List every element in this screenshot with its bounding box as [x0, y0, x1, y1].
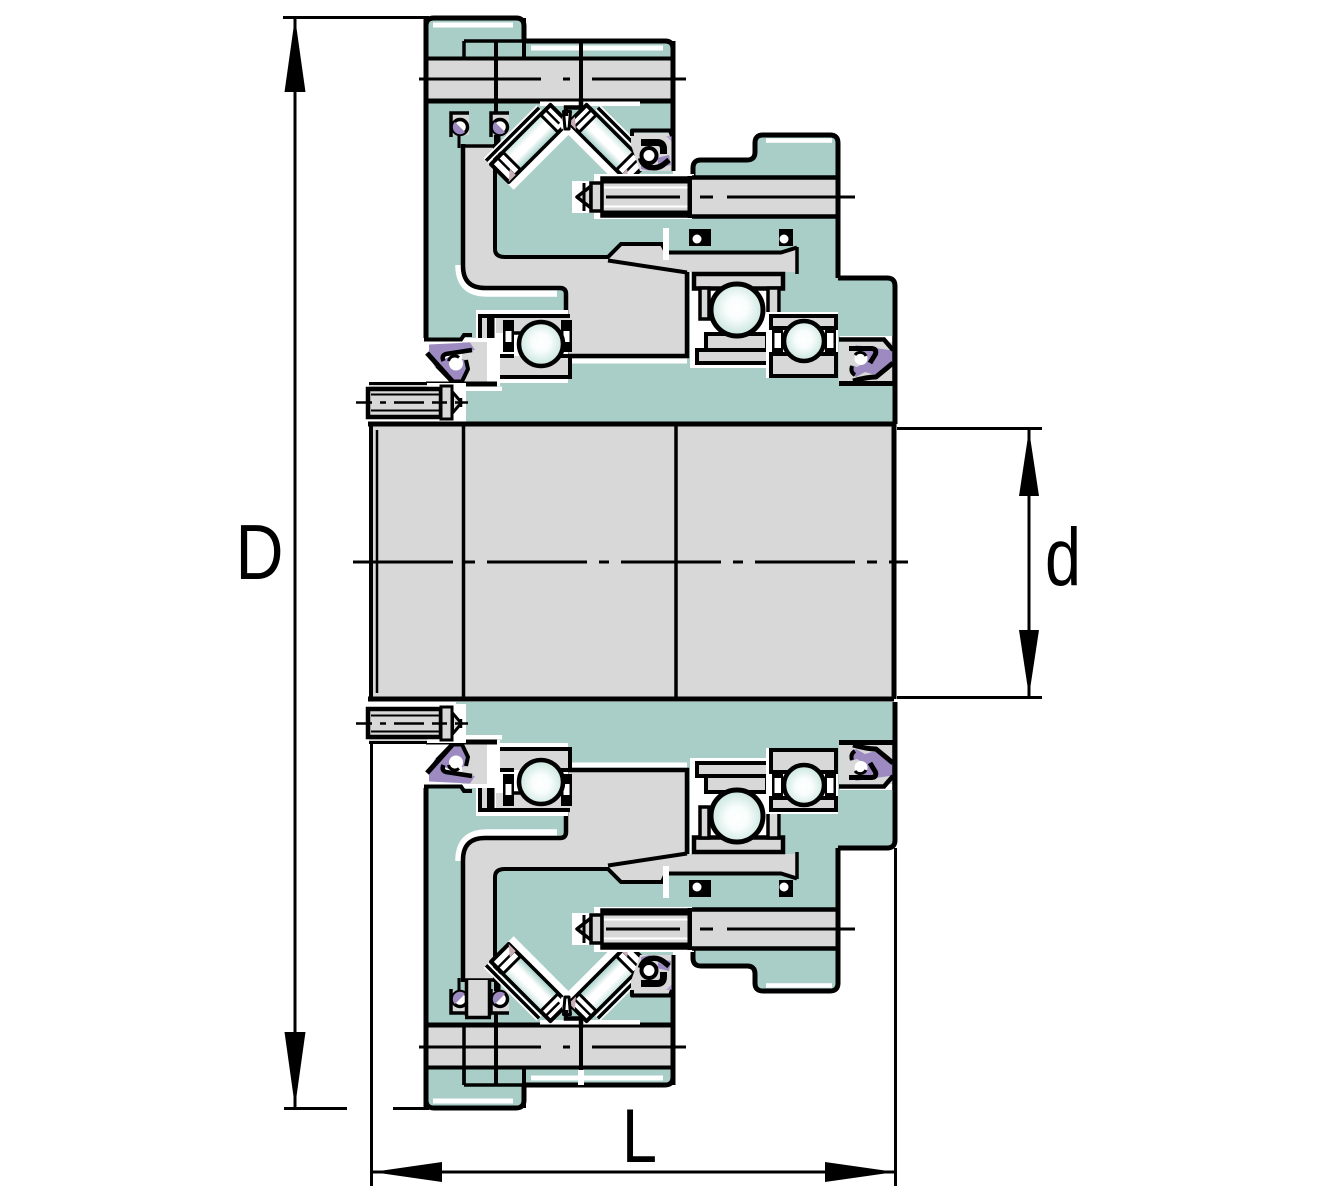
svg-text:L: L: [622, 1094, 657, 1179]
svg-text:D: D: [236, 508, 284, 596]
svg-text:d: d: [1045, 512, 1081, 603]
